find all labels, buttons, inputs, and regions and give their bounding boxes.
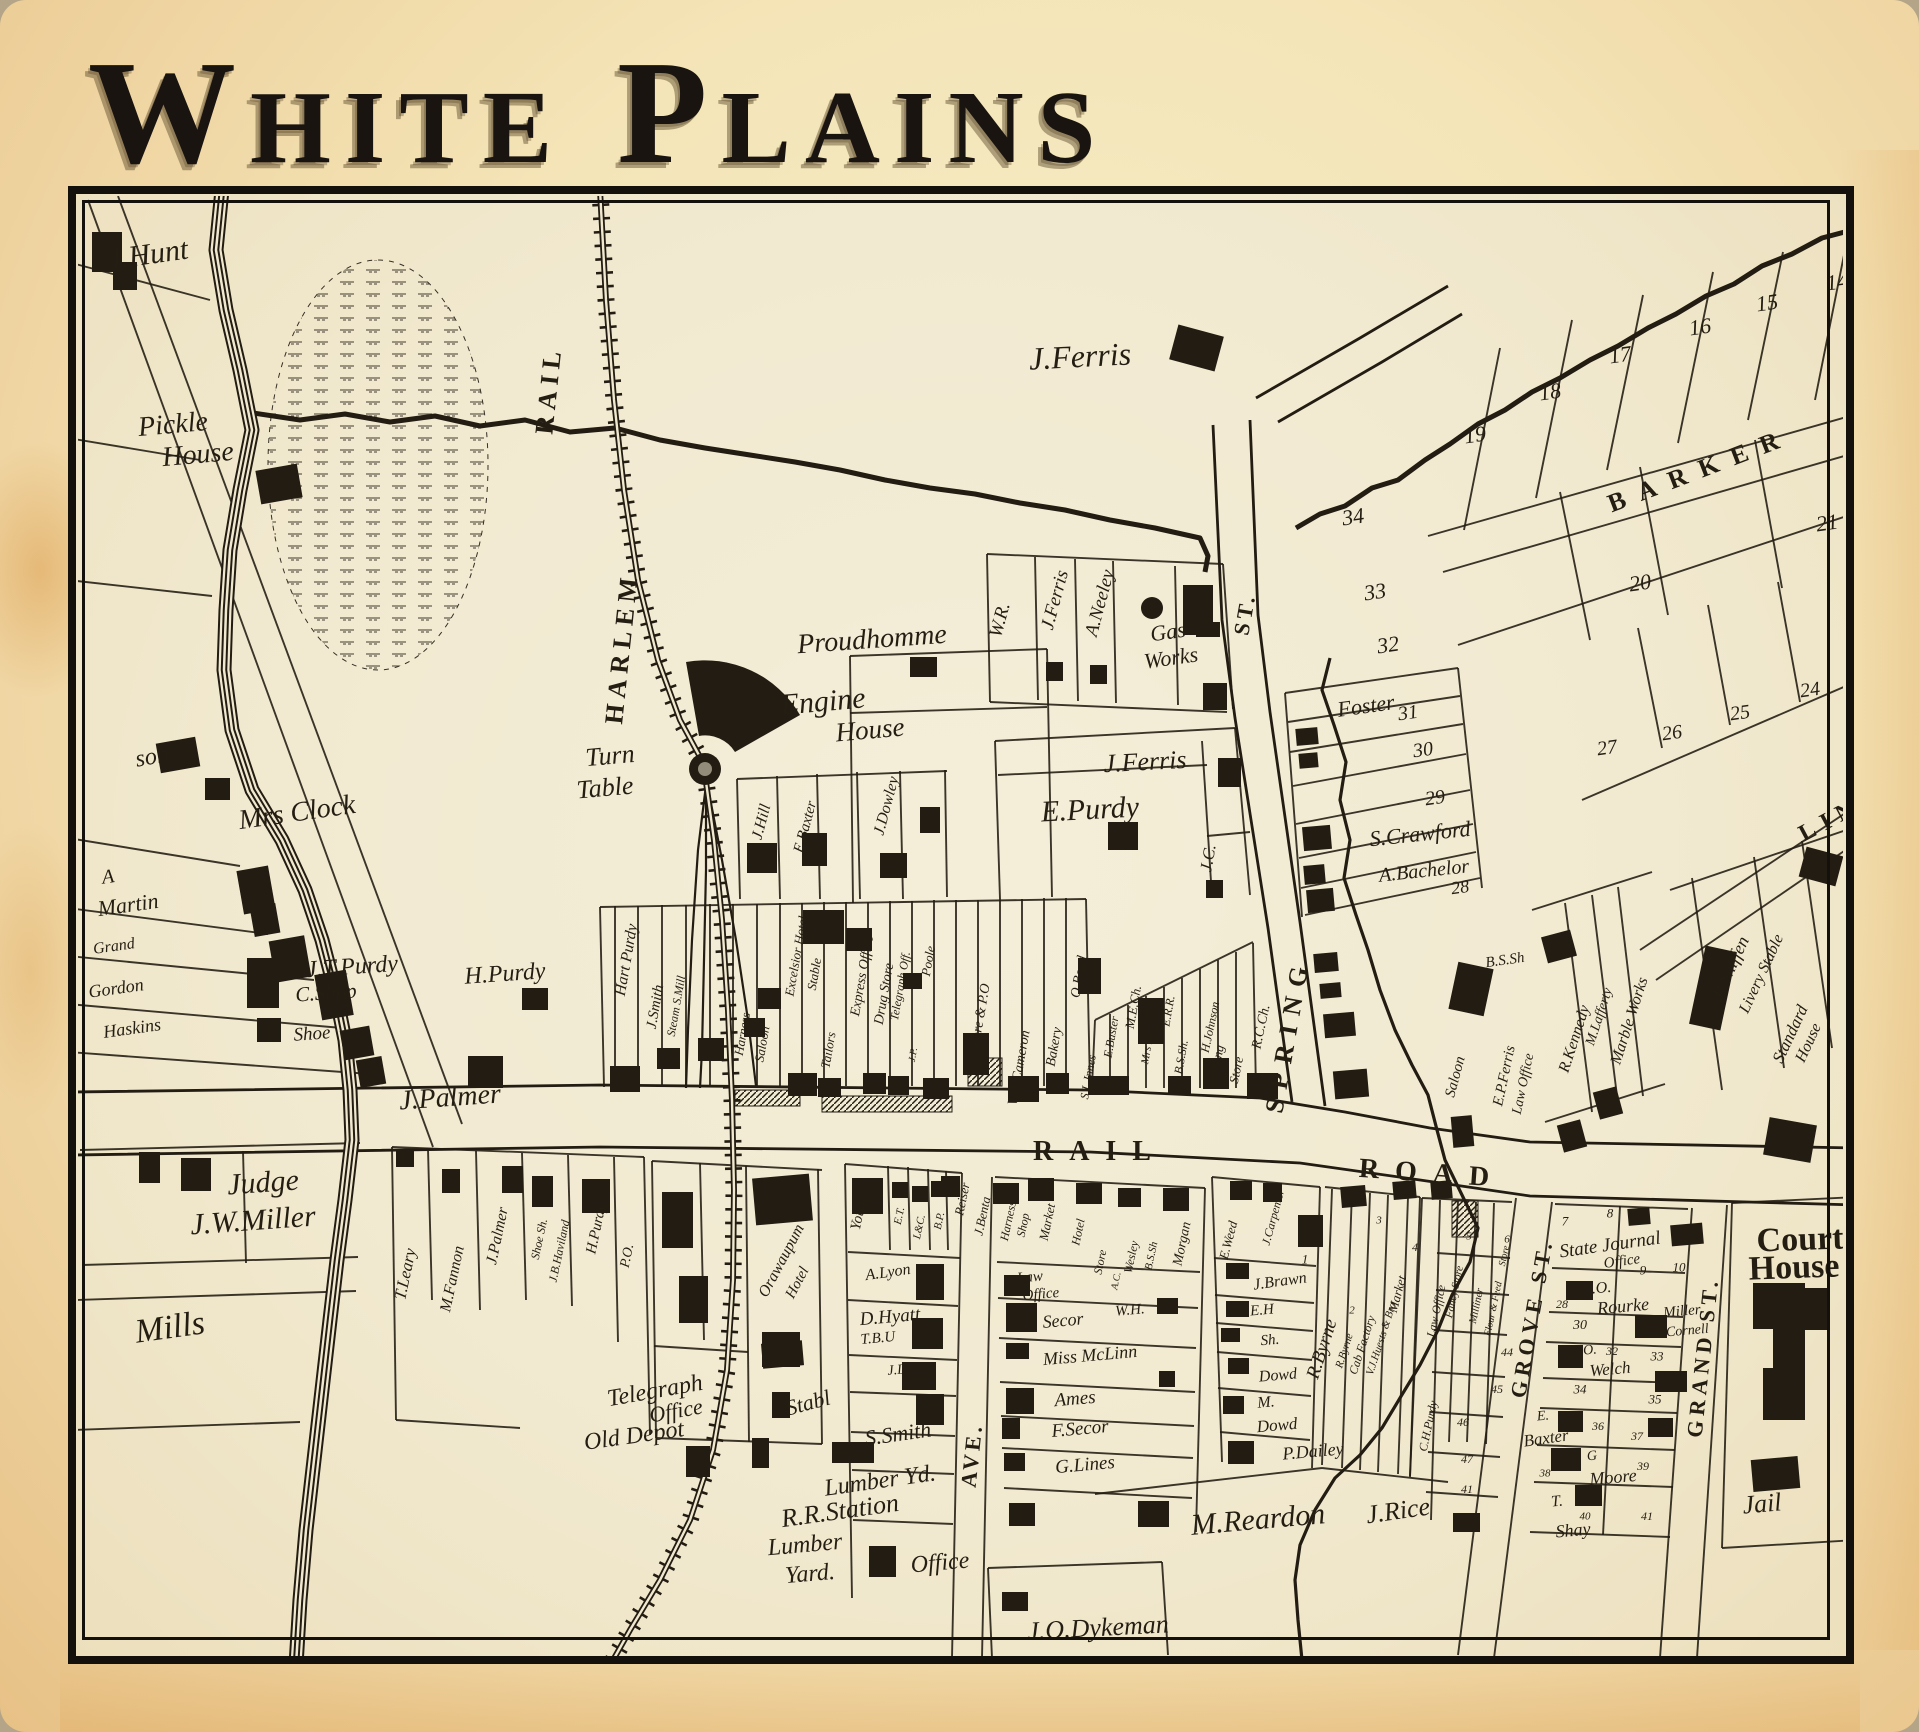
map-label: 18 xyxy=(1538,380,1563,405)
building xyxy=(1009,1503,1035,1526)
map-label: Sh. xyxy=(1260,1333,1280,1350)
lot-line xyxy=(600,907,604,1087)
map-label: House xyxy=(161,438,235,472)
building xyxy=(1763,1368,1805,1420)
lot-line xyxy=(1322,1468,1448,1482)
building xyxy=(1002,1592,1028,1611)
map-label: D.Hyatt xyxy=(859,1305,921,1329)
lot-line xyxy=(654,1346,748,1352)
lot-line xyxy=(850,707,1047,713)
building xyxy=(1453,1513,1480,1532)
gas-holder xyxy=(1141,597,1163,619)
building xyxy=(920,807,940,833)
building xyxy=(247,958,279,1008)
lot-line xyxy=(68,838,240,866)
building xyxy=(1138,1501,1169,1527)
building xyxy=(1340,1185,1367,1208)
lot-line xyxy=(1607,295,1643,470)
building xyxy=(1593,1086,1623,1119)
map-label: 41 xyxy=(1461,1483,1473,1495)
building xyxy=(1206,880,1223,898)
map-label: 44 xyxy=(1501,1346,1513,1358)
lot-line xyxy=(1555,1204,1688,1209)
map-label: Office xyxy=(910,1548,971,1577)
building xyxy=(752,1438,769,1468)
lot-line xyxy=(845,1164,962,1173)
building xyxy=(1221,1328,1240,1342)
building xyxy=(139,1152,160,1183)
lot-line xyxy=(982,1177,992,1658)
map-label: 7 xyxy=(1562,1215,1569,1228)
stream xyxy=(1296,230,1852,528)
lot-line xyxy=(1458,512,1859,645)
lot-line xyxy=(995,728,1235,741)
map-label: E.H xyxy=(1250,1302,1275,1319)
lot-line xyxy=(1638,628,1662,748)
map-label: 25 xyxy=(1729,702,1752,725)
building xyxy=(1648,1418,1673,1437)
map-label: son xyxy=(133,742,170,771)
building xyxy=(610,1066,640,1092)
map-label: 17 xyxy=(1608,343,1633,368)
lot-line xyxy=(737,771,947,779)
lot-line xyxy=(1207,832,1250,836)
lot-line xyxy=(888,1166,890,1250)
building xyxy=(912,1186,928,1202)
lot-line xyxy=(900,771,903,899)
building xyxy=(662,1192,693,1248)
building xyxy=(1108,822,1138,850)
building xyxy=(1313,952,1339,973)
building xyxy=(356,1056,386,1088)
building xyxy=(1302,825,1332,851)
building xyxy=(1793,1288,1830,1330)
lot-line xyxy=(849,1355,957,1360)
map-label: G.Lines xyxy=(1054,1453,1115,1477)
building xyxy=(1558,1345,1583,1368)
map-label: 31 xyxy=(1397,702,1420,725)
building xyxy=(1090,665,1107,684)
lot-line xyxy=(1235,728,1250,895)
map-label: Yard. xyxy=(784,1560,835,1588)
map-label: J.O. xyxy=(1584,1280,1612,1298)
map-label: 33 xyxy=(1363,580,1388,605)
building xyxy=(762,1332,800,1367)
building xyxy=(892,1182,908,1198)
map-label: Dowd xyxy=(1256,1415,1298,1435)
lot-line xyxy=(995,741,1000,899)
building xyxy=(1319,982,1341,999)
map-label: Lumber xyxy=(767,1530,843,1560)
building xyxy=(1203,683,1227,710)
map-label: Law xyxy=(1016,1269,1043,1286)
map-label: 2 xyxy=(1349,1306,1355,1317)
map-label: Shoe xyxy=(293,1023,331,1045)
building xyxy=(1046,1073,1069,1094)
building xyxy=(1006,1343,1029,1359)
map-label: 46 xyxy=(1457,1416,1469,1428)
map-label: Dowd xyxy=(1258,1366,1297,1385)
building xyxy=(1655,1371,1687,1392)
map-label: J.C. xyxy=(1197,843,1218,873)
paper-stain xyxy=(1840,150,1919,1650)
lot-line xyxy=(476,1151,480,1310)
building xyxy=(1763,1117,1817,1163)
map-label: Table xyxy=(576,773,635,804)
lot-line xyxy=(80,1143,360,1150)
building xyxy=(1002,1418,1020,1439)
building xyxy=(396,1149,414,1167)
building xyxy=(880,853,907,878)
map-label: F.Secor xyxy=(1051,1417,1110,1441)
lot-line xyxy=(68,580,212,596)
building xyxy=(1551,1448,1581,1471)
building xyxy=(1627,1207,1650,1226)
building xyxy=(1157,1298,1178,1314)
map-label: 26 xyxy=(1661,722,1684,745)
building xyxy=(255,464,302,505)
map-label: Shay xyxy=(1555,1520,1591,1541)
building xyxy=(863,1073,886,1094)
map-label: E. xyxy=(1536,1410,1549,1425)
map-label: 3 xyxy=(1376,1216,1382,1227)
map-label: 38 xyxy=(1540,1469,1551,1480)
lot-line xyxy=(746,1166,749,1442)
map-label: 1 xyxy=(1302,1253,1309,1266)
building xyxy=(869,1546,896,1577)
lot-line xyxy=(1285,668,1458,693)
map-label: 30 xyxy=(1412,739,1435,762)
map-label: Jail xyxy=(1741,1489,1782,1518)
map-label: 16 xyxy=(1688,315,1713,340)
lot-line xyxy=(908,1167,910,1250)
building xyxy=(1230,1181,1252,1200)
lot-line xyxy=(1095,1468,1322,1494)
lot-line xyxy=(1748,252,1783,420)
building xyxy=(1298,752,1318,769)
lot-line xyxy=(1536,320,1572,498)
map-content: J.HuntPickleHouseMrs ClocksonAMartinGran… xyxy=(0,0,1919,1732)
map-label: 32 xyxy=(1606,1345,1618,1357)
lot-line xyxy=(777,776,780,899)
map-label: 36 xyxy=(1592,1420,1604,1432)
lot-line xyxy=(1778,582,1800,702)
lot-line xyxy=(988,1568,992,1658)
building xyxy=(1226,1301,1249,1317)
lot-line xyxy=(1532,872,1652,910)
building xyxy=(1306,888,1335,913)
lot-line xyxy=(68,1052,370,1074)
building xyxy=(1076,1183,1102,1204)
building xyxy=(1108,1076,1129,1095)
building xyxy=(1751,1456,1801,1492)
map-label: 27 xyxy=(1596,737,1619,760)
map-label: 39 xyxy=(1637,1460,1649,1472)
street-edge xyxy=(1256,286,1448,398)
lot-line xyxy=(952,1173,962,1658)
map-label: 20 xyxy=(1628,571,1653,596)
scanned-map-page: White Plains J.HuntPickleHouseMrs Clocks… xyxy=(0,0,1919,1732)
map-label: E. Secor xyxy=(1022,1309,1084,1332)
lot-line xyxy=(945,770,947,897)
building xyxy=(442,1169,460,1193)
map-label: H.Purdy xyxy=(464,959,547,989)
building xyxy=(657,1048,680,1069)
map-label: Welch xyxy=(1589,1359,1631,1380)
map-label: 8 xyxy=(1607,1207,1614,1220)
lot-line xyxy=(1443,452,1858,572)
lot-line xyxy=(848,1252,960,1258)
map-label: Gas xyxy=(1149,619,1187,646)
map-label: O. xyxy=(1583,1343,1598,1358)
building xyxy=(1163,1188,1189,1211)
building xyxy=(1159,1371,1175,1387)
building xyxy=(1298,1215,1323,1247)
building xyxy=(803,910,844,944)
lot-line xyxy=(82,1257,358,1265)
building xyxy=(758,988,781,1009)
building xyxy=(1028,1178,1054,1201)
building xyxy=(1451,1115,1475,1148)
building xyxy=(1228,1358,1249,1374)
lot-line xyxy=(72,1422,300,1430)
map-label: 21 xyxy=(1815,511,1840,536)
lot-line xyxy=(1035,557,1038,700)
map-label: 30 xyxy=(1573,1319,1587,1333)
lot-line xyxy=(737,779,740,899)
paper-stain xyxy=(60,1660,1860,1732)
map-label: J.Palmer xyxy=(398,1080,502,1115)
hatched-building xyxy=(822,1096,952,1112)
map-label: Ames xyxy=(1054,1388,1097,1411)
lot-line xyxy=(1530,1532,1670,1537)
map-label: 29 xyxy=(1424,787,1447,810)
lot-line xyxy=(1075,559,1078,701)
building xyxy=(532,1176,553,1207)
lot-line xyxy=(988,1562,1162,1568)
map-title: White Plains xyxy=(88,28,1109,198)
building xyxy=(1046,662,1063,681)
map-label: 4 xyxy=(1412,1241,1418,1253)
lot-line xyxy=(1293,754,1466,786)
building xyxy=(1295,727,1318,746)
building xyxy=(818,1078,841,1097)
building xyxy=(1006,1388,1034,1414)
map-label: A xyxy=(101,866,116,888)
building xyxy=(257,1018,281,1042)
building xyxy=(1004,1453,1025,1471)
map-label: 41 xyxy=(1641,1510,1653,1522)
building xyxy=(522,988,548,1010)
lot-line xyxy=(1196,1188,1205,1532)
building xyxy=(679,1276,708,1323)
building xyxy=(1799,847,1844,887)
building xyxy=(502,1166,523,1193)
building xyxy=(1196,622,1220,637)
building xyxy=(1223,1396,1244,1414)
map-label: 35 xyxy=(1649,1393,1662,1406)
lot-line xyxy=(1722,1540,1856,1548)
map-label: House xyxy=(1748,1249,1840,1286)
building xyxy=(1670,1223,1704,1247)
lot-line xyxy=(428,1149,432,1300)
map-label: W.H. xyxy=(1115,1302,1146,1320)
map-label: J.Ferris xyxy=(1028,337,1132,374)
map-label: J.Ferris xyxy=(1103,747,1187,777)
building xyxy=(1226,1263,1249,1279)
map-label: Rourke xyxy=(1596,1295,1649,1317)
map-label: 28 xyxy=(1450,877,1470,897)
building xyxy=(1557,1119,1587,1152)
map-label: 28 xyxy=(1556,1298,1568,1310)
lot-line xyxy=(1431,1200,1440,1520)
map-label: T. xyxy=(1550,1494,1563,1511)
map-label: M. xyxy=(1257,1394,1276,1411)
map-label: C.Shop xyxy=(295,980,358,1005)
building xyxy=(916,1264,944,1300)
map-label: 33 xyxy=(1651,1350,1664,1363)
lot-line xyxy=(1560,492,1590,640)
map-label: T.B.U xyxy=(860,1330,896,1348)
lot-line xyxy=(928,1169,930,1250)
map-label: RAIL xyxy=(1033,1138,1167,1166)
building xyxy=(1228,1441,1254,1464)
turntable xyxy=(698,762,712,776)
lot-line xyxy=(1342,1191,1352,1468)
map-label: 19 xyxy=(1463,423,1488,448)
map-label: G xyxy=(1586,1450,1597,1465)
lot-line xyxy=(1202,741,1212,897)
hatched-building xyxy=(968,1058,1002,1086)
map-label: 6 xyxy=(1504,1235,1510,1246)
building xyxy=(910,657,937,677)
hatched-building xyxy=(735,1090,800,1106)
building xyxy=(1303,864,1326,885)
map-label: 34 xyxy=(1341,505,1366,530)
map-label: 37 xyxy=(1631,1430,1643,1442)
building xyxy=(340,1026,375,1061)
building xyxy=(752,1174,813,1226)
lot-line xyxy=(857,772,860,899)
building xyxy=(181,1158,211,1191)
building xyxy=(747,843,777,873)
map-label: 32 xyxy=(1376,633,1401,658)
building xyxy=(1118,1188,1141,1207)
building xyxy=(888,1076,909,1095)
building xyxy=(205,778,230,800)
map-label: 45 xyxy=(1491,1383,1503,1395)
map-label: Pickle xyxy=(137,408,209,442)
marsh-area xyxy=(268,260,488,670)
map-label: 9 xyxy=(1640,1264,1647,1277)
map-label: Judge xyxy=(226,1166,300,1201)
lot-line xyxy=(76,1291,356,1300)
map-label: 24 xyxy=(1799,679,1822,702)
building xyxy=(1333,1069,1369,1100)
map-label: Turn xyxy=(584,741,635,771)
map-label: Office xyxy=(1022,1286,1060,1304)
building xyxy=(1323,1012,1356,1039)
map-label: 5 xyxy=(1466,1232,1472,1243)
building xyxy=(1218,758,1241,787)
map-label: House xyxy=(834,714,905,747)
building xyxy=(1168,1076,1191,1095)
building xyxy=(1169,325,1224,372)
building xyxy=(686,1446,710,1477)
map-label: Moore xyxy=(1589,1466,1638,1488)
lot-line xyxy=(1212,1177,1222,1462)
lot-line xyxy=(1398,1197,1408,1474)
lot-line xyxy=(987,554,1223,564)
map-label: 40 xyxy=(1580,1512,1591,1523)
map-label: 34 xyxy=(1574,1383,1587,1396)
map-label: J.L. xyxy=(887,1363,909,1379)
map-label: E.Purdy xyxy=(1040,792,1139,827)
map-label: 10 xyxy=(1673,1261,1686,1274)
map-label: 15 xyxy=(1755,291,1780,316)
lot-line xyxy=(614,1157,618,1342)
lot-line xyxy=(1708,605,1730,725)
building xyxy=(698,1038,724,1061)
building xyxy=(1773,1328,1805,1370)
lot-line xyxy=(396,1420,520,1428)
lot-line xyxy=(600,899,1086,907)
building xyxy=(250,903,281,937)
hatched-building xyxy=(1452,1201,1478,1237)
map-label: 47 xyxy=(1461,1453,1473,1465)
